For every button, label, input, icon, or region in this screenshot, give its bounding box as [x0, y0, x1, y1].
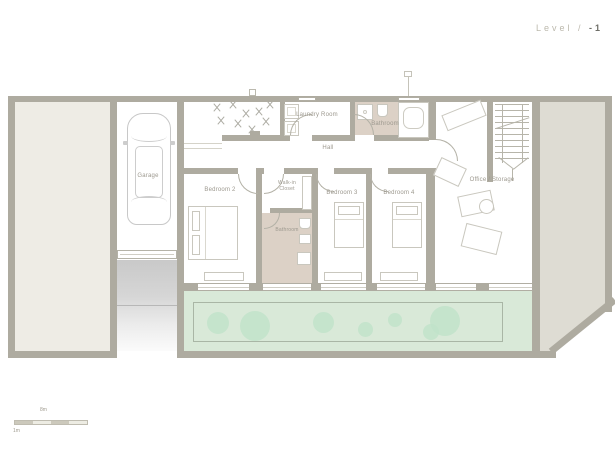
room-label-bathroom-main: Bathroom: [361, 121, 409, 128]
garden-bush-icon: [240, 311, 270, 341]
room-label-laundry: Laundry Room: [286, 112, 348, 119]
scale-segment: [15, 421, 33, 424]
bedroom-wall-north-a: [184, 168, 238, 174]
courtyard-wall: [222, 135, 283, 141]
plant-icon: [216, 115, 226, 125]
boundary-wall-right: [605, 96, 612, 312]
staircase: [495, 104, 529, 163]
plant-icon: [265, 99, 275, 109]
plant-icon: [247, 124, 257, 134]
scale-segment: [51, 421, 69, 424]
wall-closet-bedroom3: [312, 168, 318, 290]
car-roof: [135, 146, 163, 198]
window-pillar: [311, 283, 321, 291]
plant-icon: [212, 102, 222, 112]
room-label-bedroom3: Bedroom 3: [316, 190, 368, 197]
window-pillar: [249, 283, 263, 291]
pillow: [396, 206, 418, 215]
building-wall-east: [532, 96, 540, 351]
plant-icon: [261, 116, 271, 126]
driveway-ramp: [117, 260, 177, 351]
garden-bush-icon: [207, 312, 229, 334]
scale-segment: [69, 421, 87, 424]
scale-bar: [14, 420, 88, 425]
garage-door: [117, 250, 177, 259]
shower-drain-icon: [363, 110, 367, 114]
car-windshield: [131, 130, 167, 142]
pillow: [338, 206, 360, 215]
room-label-bedroom2: Bedroom 2: [195, 187, 245, 194]
window-pillar: [184, 283, 198, 291]
building-wall-west: [110, 96, 117, 351]
window-bench: [380, 272, 418, 281]
plant-icon: [228, 99, 238, 109]
pillow: [192, 235, 200, 255]
bed: [334, 202, 364, 248]
room-label-office: Office / Storage: [450, 177, 534, 184]
roof-vent-icon: [249, 89, 256, 96]
stair-stringer: [522, 104, 523, 163]
sink: [299, 234, 311, 244]
window-pillar: [366, 283, 377, 291]
bed: [188, 206, 238, 260]
bed: [392, 202, 422, 248]
bath-office-wall: [429, 102, 436, 140]
wall-bedroom4-office: [426, 168, 435, 290]
car-rear-window: [131, 196, 167, 208]
blanket-line: [335, 219, 363, 220]
floor-plan: Garage Laundry Room Hall Bathroom Office…: [0, 0, 615, 454]
plant-icon: [254, 106, 264, 116]
toilet: [377, 104, 388, 117]
scale-label-bottom: 1m: [13, 428, 20, 434]
bedroom-wall-north-d: [334, 168, 370, 174]
driveway-line: [117, 305, 177, 306]
room-label-hall: Hall: [312, 145, 344, 152]
door-office: [436, 139, 458, 161]
stair-wall: [487, 96, 493, 182]
stool: [479, 199, 494, 214]
garden-bush-icon: [358, 322, 373, 337]
window-pillar: [476, 283, 489, 291]
blanket-line: [205, 207, 206, 259]
floor-plan-sheet: Level / -1: [0, 0, 615, 454]
boundary-wall-bottom-left: [8, 351, 117, 358]
storage-box: [461, 223, 503, 255]
window-pillar: [425, 283, 436, 291]
car-mirror: [170, 141, 175, 145]
pillow: [192, 211, 200, 231]
shower: [297, 252, 311, 265]
window-bench: [324, 272, 362, 281]
plant-icon: [233, 118, 243, 128]
room-label-bedroom4: Bedroom 4: [373, 190, 425, 197]
room-label-bathroom-small: Bathroom: [266, 228, 308, 234]
step-line: [184, 143, 222, 144]
boundary-wall-bottom: [177, 351, 556, 358]
stair-stringer: [502, 104, 503, 163]
desk: [441, 100, 486, 131]
drain-line: [408, 74, 409, 96]
yard-west: [15, 102, 110, 351]
bathtub: [398, 102, 429, 138]
room-label-walkin: Walk-in Closet: [270, 181, 304, 193]
garden-bush-icon: [388, 313, 402, 327]
top-window: [398, 97, 420, 101]
window-bench: [204, 272, 244, 281]
scale-segment: [33, 421, 51, 424]
wall-bedroom3-bedroom4: [366, 168, 372, 290]
laundry-wall-south-b: [312, 135, 355, 141]
top-window: [298, 97, 316, 101]
garden-bush-icon: [313, 312, 334, 333]
step-line: [184, 148, 222, 149]
garden-bush-icon: [423, 324, 439, 340]
scale-label-top: 8m: [40, 407, 47, 413]
plant-icon: [241, 108, 251, 118]
boundary-wall-left: [8, 96, 15, 358]
room-label-garage: Garage: [124, 173, 172, 180]
blanket-line: [393, 219, 421, 220]
garage-wall-east: [177, 96, 184, 351]
car-mirror: [123, 141, 128, 145]
drain-head-icon: [404, 71, 412, 77]
